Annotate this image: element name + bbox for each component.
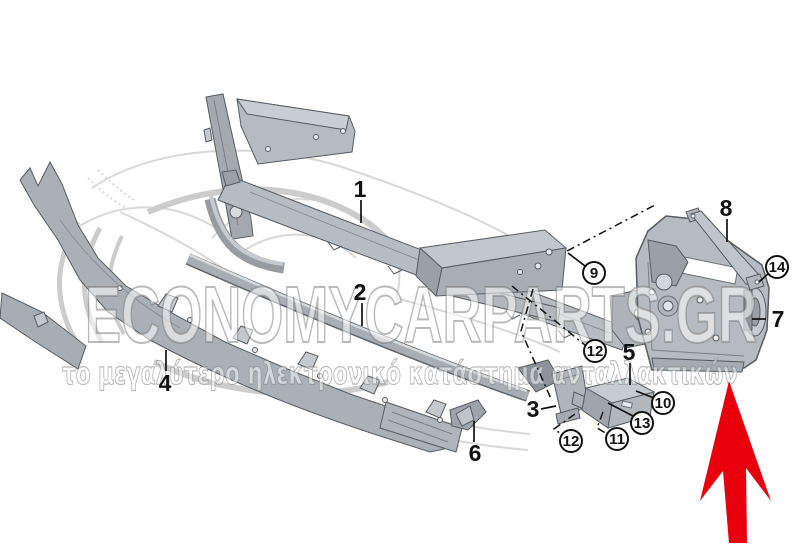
- part-label-2: 2: [354, 279, 367, 305]
- exploded-parts-diagram: ECONOMYCARPARTS.GR το μεγαλύτερο ηλεκτρο…: [0, 0, 800, 560]
- svg-text:11: 11: [609, 431, 625, 448]
- callout-14: 14: [766, 256, 788, 278]
- svg-text:14: 14: [769, 259, 786, 276]
- svg-text:12: 12: [563, 433, 580, 450]
- highlight-arrow: [700, 381, 771, 543]
- callout-11: 11: [606, 428, 628, 450]
- callout-13: 13: [631, 412, 653, 434]
- svg-text:9: 9: [590, 265, 598, 282]
- callout-12b: 12: [560, 430, 582, 452]
- part-label-6: 6: [469, 440, 482, 466]
- part-label-5: 5: [623, 339, 636, 365]
- callout-12a: 12: [584, 340, 606, 362]
- svg-text:10: 10: [655, 395, 672, 412]
- callout-10: 10: [652, 392, 674, 414]
- part-label-8: 8: [720, 195, 733, 221]
- parts-diagram-page: ECONOMYCARPARTS.GR το μεγαλύτερο ηλεκτρο…: [0, 0, 800, 560]
- svg-text:12: 12: [587, 343, 604, 360]
- part-6-bracket: [450, 400, 486, 430]
- part-label-7: 7: [772, 306, 785, 332]
- part-label-4: 4: [159, 370, 172, 396]
- watermark-brand-text: ECONOMYCARPARTS.GR: [85, 270, 757, 359]
- svg-text:13: 13: [634, 415, 651, 432]
- callout-9: 9: [583, 262, 605, 284]
- part-label-3: 3: [527, 396, 540, 422]
- part-label-1: 1: [354, 176, 367, 202]
